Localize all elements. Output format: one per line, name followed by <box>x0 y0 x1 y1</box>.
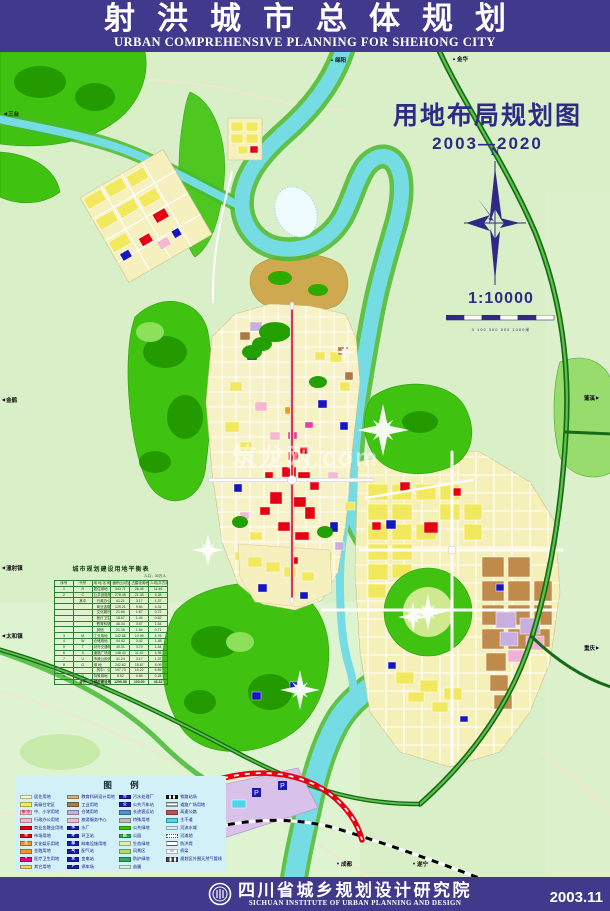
legend-item: 邮邮电设施用地 <box>67 840 115 848</box>
legend-swatch: 污 <box>119 795 131 800</box>
legend-swatch <box>166 818 178 823</box>
legend-label: 铁路站场 <box>180 795 197 799</box>
legend-item: 污污水处理厂 <box>119 793 162 801</box>
legend-label: 行政办公用地 <box>34 818 59 822</box>
compass-icon <box>458 159 532 289</box>
legend-swatch <box>119 841 131 846</box>
legend-label: 河流水域 <box>180 826 197 830</box>
legend-label: 金融用地 <box>34 849 51 853</box>
legend-swatch <box>166 810 178 815</box>
edge-arrow-icon: ◀ <box>2 634 5 638</box>
legend-label: 市场用地 <box>34 834 51 838</box>
legend-item: 其它用地 <box>20 863 63 871</box>
legend-swatch <box>166 857 178 862</box>
legend-item: 高级住宅区 <box>20 801 63 809</box>
legend-item: 生态绿地 <box>119 840 162 848</box>
legend-swatch <box>67 795 79 800</box>
legend-label: 公共汽车站 <box>133 803 154 807</box>
legend-item: 河滩地 <box>166 832 222 840</box>
legend-item: 行政办公用地 <box>20 816 63 824</box>
legend-item: 道路广场用地 <box>166 801 222 809</box>
legend-swatch-mark: 邮 <box>72 842 76 846</box>
edge-arrow-icon: ▼ <box>336 862 340 866</box>
legend-swatch-mark: 环 <box>72 834 76 838</box>
legend-item: 变变电站 <box>67 855 115 863</box>
legend-swatch-mark: ▭ <box>170 850 173 854</box>
edge-label-重庆: 重庆▶ <box>584 644 599 652</box>
edge-label-绵阳: ▲绵阳 <box>330 56 346 64</box>
scale-block: 1:10000 0 100 300 500 1000米 <box>436 290 566 333</box>
legend-label: 其它用地 <box>34 865 51 869</box>
header-banner: 射洪城市总体规划 URBAN COMPREHENSIVE PLANNING FO… <box>0 0 610 52</box>
legend-swatch: 文 <box>20 841 32 846</box>
legend-item: 防护绿地 <box>119 855 162 863</box>
edge-label-金鹤: ◀金鹤 <box>2 396 17 404</box>
legend-label: 变电站 <box>81 857 94 861</box>
legend-item: 居住用地 <box>20 793 63 801</box>
legend-label: 文化娱乐用地 <box>34 842 59 846</box>
legend-title: 图 例 <box>20 779 222 791</box>
legend-item: 环环卫站 <box>67 832 115 840</box>
legend-swatch-mark: 气 <box>72 850 76 854</box>
legend-swatch: 变 <box>67 857 79 862</box>
legend-swatch <box>20 795 32 800</box>
land-balance-table: 城市规划建设用地平衡表 人口：30万人 序号代号用 地 名 称面积(公顷)占建设… <box>54 564 168 685</box>
legend-swatch: 公 <box>119 802 131 807</box>
edge-label-潼射镇: ◀潼射镇 <box>2 564 23 572</box>
legend-label: 公园 <box>133 834 141 838</box>
legend-item: 公公共汽车站 <box>119 801 162 809</box>
legend-item: 公共绿地 <box>119 824 162 832</box>
edge-label-金华: ▲金华 <box>452 55 468 63</box>
legend-item: 防洪堤 <box>166 840 222 848</box>
edge-label-遂宁: ▼遂宁 <box>412 860 428 868</box>
scale-tick-labels: 0 100 300 500 1000米 <box>436 327 566 333</box>
legend-swatch-mark: 污 <box>123 795 127 799</box>
legend-swatch <box>166 834 178 839</box>
legend-item: 气配气站 <box>67 848 115 856</box>
legend-swatch <box>119 849 131 854</box>
legend-swatch <box>20 818 32 823</box>
legend-swatch: 水 <box>67 826 79 831</box>
legend-label: 特殊用地 <box>133 818 150 822</box>
legend-swatch <box>119 818 131 823</box>
legend-swatch <box>166 826 178 831</box>
legend-swatch <box>166 802 178 807</box>
legend-swatch <box>166 795 178 800</box>
legend-label: 公共绿地 <box>133 826 150 830</box>
svg-text:P: P <box>280 783 285 790</box>
compass-rose: N <box>458 144 532 292</box>
legend-swatch-mark: 文 <box>24 842 28 846</box>
legend-label: 污水处理厂 <box>133 795 154 799</box>
balance-table-note: 人口：30万人 <box>54 574 166 579</box>
balance-row: 合计城市建设用地1299.58100.0043.32 <box>55 679 168 685</box>
edge-arrow-icon: ◀ <box>2 566 5 570</box>
legend-swatch <box>166 841 178 846</box>
legend-item: 商业金融业用地 <box>20 824 63 832</box>
footer-banner: 四川省城乡规划设计研究院 SICHUAN INSTITUTE OF URBAN … <box>0 877 610 911</box>
legend-label: 水厂 <box>81 826 89 830</box>
legend-swatch: 气 <box>67 849 79 854</box>
legend-item: 水水厂 <box>67 824 115 832</box>
legend-label: 商业金融业用地 <box>34 826 63 830</box>
legend-swatch-mark: 园 <box>123 834 127 838</box>
legend-swatch: 环 <box>67 834 79 839</box>
legend-label: 仓储用地 <box>81 810 98 814</box>
legend-swatch: 园 <box>119 834 131 839</box>
edge-label-成都: ▼成都 <box>336 860 352 868</box>
legend-swatch <box>119 826 131 831</box>
map-area: P P 用地布局规划图 2003—2020 N <box>0 52 610 877</box>
balance-table-body: 1R居住用地343.7126.4511.462C公共设施用地278.4521.4… <box>55 586 168 685</box>
legend-item: 园公园 <box>119 832 162 840</box>
scale-ratio: 1:10000 <box>436 290 566 308</box>
institute-logo-icon <box>208 882 232 906</box>
footer-date: 2003.11 <box>550 889 603 906</box>
balance-table-title: 城市规划建设用地平衡表 <box>54 564 168 573</box>
map-title: 用地布局规划图 <box>385 96 590 132</box>
legend-label: 中、小学用地 <box>34 810 59 814</box>
legend-swatch <box>119 857 131 862</box>
legend-item: 教育科研设计用地 <box>67 793 115 801</box>
legend-swatch-mark: 水 <box>72 826 76 830</box>
peninsula-hill <box>250 254 348 312</box>
legend-swatch <box>20 826 32 831</box>
legend-item: 河流水域 <box>166 824 222 832</box>
legend-item: 规划区外围天然气管线 <box>166 855 222 863</box>
roundabout <box>288 476 297 485</box>
legend-label: 风景区 <box>133 849 146 853</box>
legend-item: 高速公路 <box>166 809 222 817</box>
legend-swatch-mark: 公 <box>123 803 127 807</box>
legend-panel: 图 例 居住用地高级住宅区中·小中、小学用地行政办公用地商业金融业用地市市场用地… <box>16 776 226 872</box>
legend-item: 长途客运站 <box>119 809 162 817</box>
legend-swatch <box>67 818 79 823</box>
legend-swatch: + <box>20 857 32 862</box>
legend-swatch-mark: 中·小 <box>22 811 30 815</box>
institute-name-block: 四川省城乡规划设计研究院 SICHUAN INSTITUTE OF URBAN … <box>238 882 472 907</box>
roundabout <box>448 546 456 554</box>
legend-label: 防洪堤 <box>180 842 193 846</box>
legend-label: 高级住宅区 <box>34 803 55 807</box>
watermark: 筑龙网.com <box>232 438 379 474</box>
legend-item: ▭桥梁 <box>166 848 222 856</box>
page-title: 射洪城市总体规划 <box>82 3 528 34</box>
planning-map-page: 射洪城市总体规划 URBAN COMPREHENSIVE PLANNING FO… <box>0 0 610 911</box>
legend-item: 风景区 <box>119 848 162 856</box>
legend-swatch <box>67 802 79 807</box>
legend-swatch <box>20 849 32 854</box>
scale-bar <box>446 315 556 321</box>
legend-swatch <box>20 865 32 870</box>
legend-item: 铁路站场 <box>166 793 222 801</box>
legend-label: 桥梁 <box>180 849 188 853</box>
legend-item: 市市场用地 <box>20 832 63 840</box>
legend-swatch: P <box>67 865 79 870</box>
legend-label: 道路广场用地 <box>180 803 205 807</box>
edge-arrow-icon: ▲ <box>330 58 334 62</box>
legend-swatch: 中·小 <box>20 810 32 815</box>
legend-label: 主干道 <box>180 818 193 822</box>
legend-swatch <box>20 802 32 807</box>
legend-swatch: 邮 <box>67 841 79 846</box>
compass-north-label: N <box>458 144 532 159</box>
legend-label: 环卫站 <box>81 834 94 838</box>
legend-item: 工业用地 <box>67 801 115 809</box>
legend-label: 停车场 <box>81 865 94 869</box>
legend-item: 苗圃 <box>119 863 162 871</box>
legend-label: 防护绿地 <box>133 857 150 861</box>
legend-label: 规划区外围天然气管线 <box>180 857 222 861</box>
legend-swatch <box>67 810 79 815</box>
legend-label: 苗圃 <box>133 865 141 869</box>
legend-swatch <box>119 810 131 815</box>
legend-label: 配气站 <box>81 849 94 853</box>
legend-item: 仓储用地 <box>67 809 115 817</box>
balance-table-grid: 序号代号用 地 名 称面积(公顷)占建设用地(%)人均(平方米/人) 1R居住用… <box>54 580 168 685</box>
page-subtitle: URBAN COMPREHENSIVE PLANNING FOR SHEHONG… <box>114 35 496 50</box>
edge-arrow-icon: ▲ <box>452 57 456 61</box>
north-hamlet-blocks <box>228 118 262 160</box>
legend-columns: 居住用地高级住宅区中·小中、小学用地行政办公用地商业金融业用地市市场用地文文化娱… <box>20 793 222 871</box>
legend-label: 旅游服务中心 <box>81 818 106 822</box>
edge-arrow-icon: ◀ <box>2 398 5 402</box>
legend-swatch-mark: 变 <box>72 857 76 861</box>
legend-item: +医疗卫生用地 <box>20 855 63 863</box>
legend-swatch <box>119 865 131 870</box>
legend-item: 金融用地 <box>20 848 63 856</box>
edge-label-三台: ◀三台 <box>4 110 19 118</box>
institute-name-cn: 四川省城乡规划设计研究院 <box>238 882 472 899</box>
legend-label: 居住用地 <box>34 795 51 799</box>
edge-label-蓬溪: 蓬溪▶ <box>584 394 599 402</box>
legend-label: 高速公路 <box>180 810 197 814</box>
legend-swatch-mark: P <box>72 865 74 869</box>
edge-arrow-icon: ◀ <box>4 112 7 116</box>
legend-label: 长途客运站 <box>133 810 154 814</box>
legend-label: 医疗卫生用地 <box>34 857 59 861</box>
legend-swatch: 市 <box>20 834 32 839</box>
institute-name-en: SICHUAN INSTITUTE OF URBAN PLANNING AND … <box>249 900 462 907</box>
legend-swatch-mark: + <box>25 857 27 861</box>
legend-label: 邮电设施用地 <box>81 842 106 846</box>
legend-item: 旅游服务中心 <box>67 816 115 824</box>
svg-text:P: P <box>254 790 259 797</box>
legend-item: 主干道 <box>166 816 222 824</box>
legend-label: 工业用地 <box>81 803 98 807</box>
legend-swatch-mark: 市 <box>24 834 28 838</box>
legend-label: 教育科研设计用地 <box>81 795 115 799</box>
legend-item: P停车场 <box>67 863 115 871</box>
edge-label-太和镇: ◀太和镇 <box>2 632 23 640</box>
legend-item: 特殊用地 <box>119 816 162 824</box>
edge-arrow-icon: ▶ <box>596 646 599 650</box>
legend-item: 中·小中、小学用地 <box>20 809 63 817</box>
edge-arrow-icon: ▼ <box>412 862 416 866</box>
legend-swatch: ▭ <box>166 849 178 854</box>
legend-item: 文文化娱乐用地 <box>20 840 63 848</box>
legend-label: 河滩地 <box>180 834 193 838</box>
edge-arrow-icon: ▶ <box>596 396 599 400</box>
legend-label: 生态绿地 <box>133 842 150 846</box>
